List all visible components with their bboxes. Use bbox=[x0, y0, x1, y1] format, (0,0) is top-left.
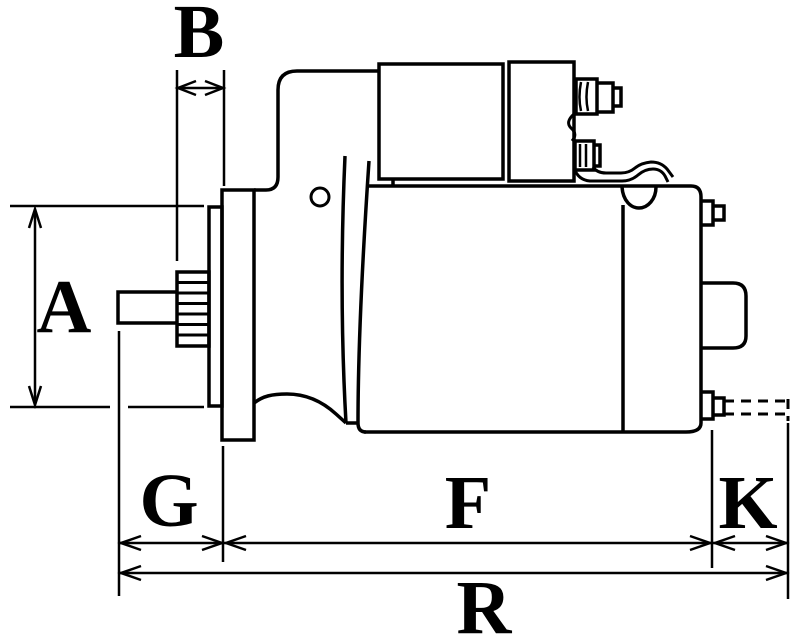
pinion-gear-teeth bbox=[177, 283, 209, 336]
dimension-r bbox=[120, 566, 787, 580]
dim-label-b: B bbox=[174, 0, 225, 74]
field-strap-upper-edge bbox=[593, 162, 673, 177]
dimension-b bbox=[177, 70, 224, 261]
motor-outline bbox=[118, 62, 788, 440]
dim-label-k: K bbox=[718, 461, 777, 545]
terminal-stud-large-threads bbox=[580, 82, 589, 111]
pilot-boss bbox=[209, 207, 222, 406]
dim-label-r: R bbox=[457, 566, 513, 638]
terminal-stud-small-threads bbox=[580, 144, 586, 167]
through-bolt-top bbox=[701, 201, 724, 225]
drive-housing-top bbox=[254, 71, 379, 190]
through-bolt-bottom bbox=[701, 392, 724, 419]
end-cap bbox=[686, 186, 701, 432]
terminal-stud-large bbox=[576, 79, 621, 114]
dim-label-f: F bbox=[445, 461, 491, 545]
drive-housing-hole bbox=[311, 188, 329, 206]
mounting-flange bbox=[222, 190, 254, 440]
technical-drawing-svg: B A G F K R bbox=[0, 0, 800, 638]
yoke-front-arc bbox=[358, 161, 369, 423]
starter-motor-dimension-drawing: B A G F K R bbox=[0, 0, 800, 638]
drive-housing-step bbox=[346, 423, 366, 432]
drive-shaft bbox=[118, 292, 177, 323]
dim-b-extension-lines bbox=[177, 70, 224, 261]
dim-label-a: A bbox=[37, 265, 92, 349]
dim-label-g: G bbox=[139, 459, 198, 543]
dimension-lines bbox=[10, 70, 788, 599]
bolt-projection-dashed bbox=[724, 399, 788, 421]
drive-housing-bottom bbox=[254, 394, 346, 423]
drive-housing-rear-arc bbox=[342, 156, 346, 423]
end-cap-bearing-boss bbox=[701, 283, 746, 348]
connector-boot-bump bbox=[622, 187, 656, 208]
solenoid-front-section bbox=[379, 64, 503, 179]
solenoid-rear-section bbox=[509, 62, 574, 181]
